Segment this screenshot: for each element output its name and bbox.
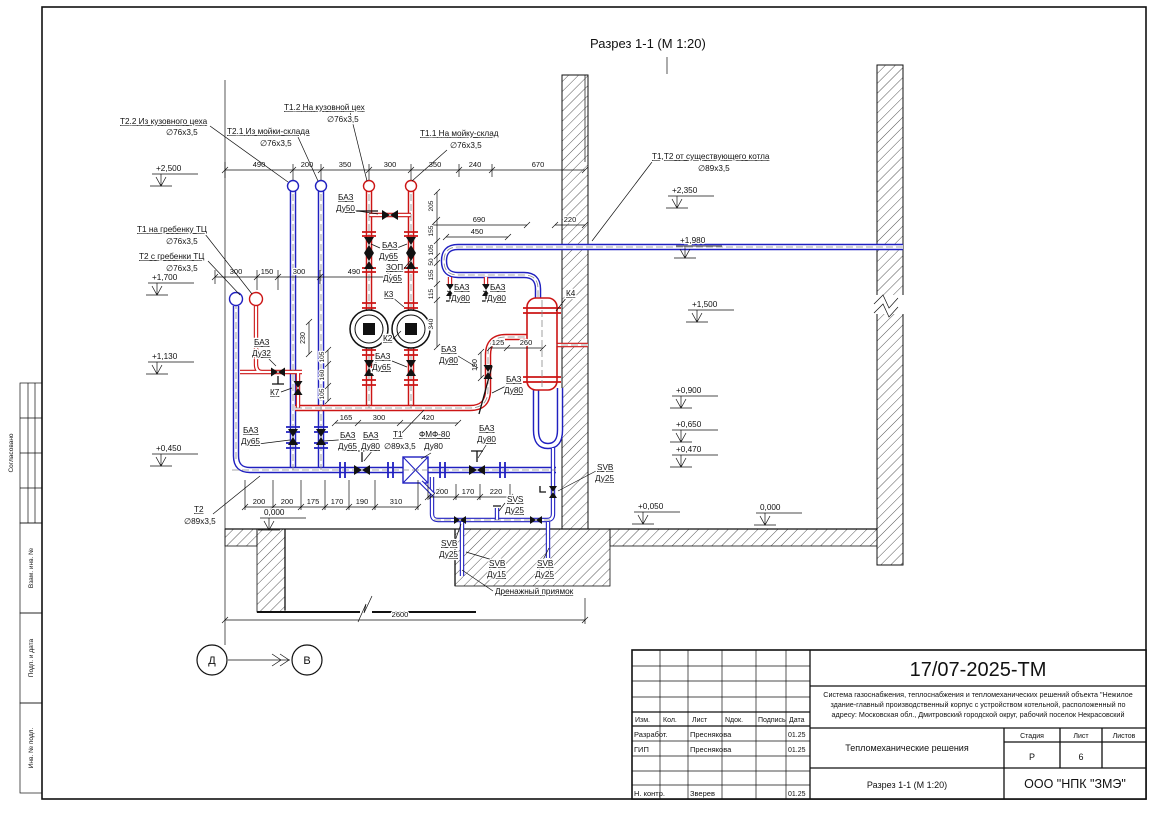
svg-text:+2,500: +2,500 — [156, 164, 182, 173]
dim-label: 205 — [428, 200, 435, 211]
dim-label: 200 — [253, 497, 266, 506]
equip-label: Ду15 — [487, 570, 506, 579]
equip-label: БАЗ — [479, 424, 495, 433]
svg-text:+2,350: +2,350 — [672, 186, 698, 195]
pipe-label: Т1.1 На мойку-склад — [420, 129, 499, 138]
equip-label: БАЗ — [243, 426, 259, 435]
stamp-vzam: Взам. инв. № — [28, 548, 35, 588]
dim-label: 690 — [473, 215, 486, 224]
dim-label: 105 — [319, 388, 326, 399]
equip-label: К4 — [566, 289, 576, 298]
dim-label: 300 — [373, 413, 386, 422]
equip-label: БАЗ — [338, 193, 354, 202]
left-stamp-strip: Согласовано Взам. инв. № Подп. и дата Ин… — [8, 383, 42, 793]
signature-role: Разработ. — [634, 730, 668, 739]
dim-label: 170 — [462, 487, 475, 496]
pipe-label: ∅76х3,5 — [166, 264, 198, 273]
equip-label: SVB — [489, 559, 506, 568]
dim-label: 670 — [532, 160, 545, 169]
svg-text:+0,650: +0,650 — [676, 420, 702, 429]
signature-date: 01.25 — [788, 732, 806, 739]
pump-k2-right — [392, 310, 430, 348]
equip-label: Ду50 — [336, 204, 355, 213]
elevation-mark: +0,470 — [670, 445, 718, 467]
equip-label: БАЗ — [340, 431, 356, 440]
dim-label: 200 — [436, 487, 449, 496]
pipe-label: ∅76х3,5 — [166, 237, 198, 246]
equip-label: Ду80 — [424, 442, 443, 451]
col-header: Кол. — [663, 717, 677, 724]
axis-label-v: В — [303, 655, 310, 667]
equip-label: Ду65 — [241, 437, 260, 446]
pipe-label: Т1 на гребенку ТЦ — [137, 225, 207, 234]
dim-label: 150 — [261, 267, 274, 276]
elevation-mark: 0,000 — [258, 508, 306, 530]
filter-fmf80 — [403, 457, 440, 499]
elevation-mark: +0,650 — [670, 420, 718, 442]
elevation-mark: 0,000 — [754, 503, 802, 525]
equip-label: Ду32 — [252, 349, 271, 358]
view-name: Разрез 1-1 (М 1:20) — [867, 780, 947, 790]
section-name: Тепломеханические решения — [845, 743, 969, 753]
elevation-mark: +0,050 — [632, 502, 680, 524]
signature-name: Преснякова — [690, 745, 732, 754]
col-header: Подпись — [758, 717, 786, 724]
elevation-mark: +0,900 — [670, 386, 718, 408]
svg-text:0,000: 0,000 — [264, 508, 285, 517]
drawing-sheet: Согласовано Взам. инв. № Подп. и дата Ин… — [0, 0, 1152, 813]
dim-label: 125 — [492, 338, 505, 347]
equip-label: Ду25 — [505, 506, 524, 515]
equip-label: Ду80 — [451, 294, 470, 303]
dim-label: 2600 — [392, 610, 409, 619]
dim-label: 160 — [319, 369, 326, 380]
equip-label: Ду25 — [439, 550, 458, 559]
equip-label: ФМФ-80 — [419, 430, 450, 439]
svg-text:+1,700: +1,700 — [152, 273, 178, 282]
pipe-label: ∅89х3,5 — [384, 442, 416, 451]
elevation-mark: +1,500 — [686, 300, 734, 322]
svg-text:+1,130: +1,130 — [152, 352, 178, 361]
dim-label: 170 — [331, 497, 344, 506]
sheets-header: Листов — [1113, 733, 1136, 740]
axis-markers: Д В — [197, 645, 322, 675]
svg-text:0,000: 0,000 — [760, 503, 781, 512]
elevation-mark: +1,130 — [146, 352, 194, 374]
svg-text:+0,470: +0,470 — [676, 445, 702, 454]
project-description: адресу: Московская обл., Дмитровский гор… — [832, 710, 1125, 719]
pipe-label: Т1,Т2 от существующего котла — [652, 152, 770, 161]
equip-label: БАЗ — [454, 283, 470, 292]
pipe-label: Т2.1 Из мойки-склада — [227, 127, 310, 136]
dim-label: 200 — [281, 497, 294, 506]
equip-label: Ду80 — [504, 386, 523, 395]
elevation-mark: +2,500 — [150, 164, 198, 186]
pipe-label: ∅89х3,5 — [184, 517, 216, 526]
dim-label: 220 — [490, 487, 503, 496]
stamp-podp: Подп. и дата — [28, 638, 35, 677]
equip-label: Ду65 — [372, 363, 391, 372]
dim-label: 310 — [390, 497, 403, 506]
pit-label: Дренажный приямок — [495, 587, 574, 596]
svg-text:+0,050: +0,050 — [638, 502, 664, 511]
pipe-label: Т1 — [393, 430, 403, 439]
equip-label: Ду25 — [535, 570, 554, 579]
dim-label: 300 — [293, 267, 306, 276]
dim-label: 115 — [428, 288, 435, 299]
col-header: Изм. — [635, 717, 650, 724]
signature-role: Н. контр. — [634, 789, 665, 798]
stage-value: Р — [1029, 752, 1035, 762]
dim-label: 420 — [422, 413, 435, 422]
pipe-label: Т2 с гребенки ТЦ — [139, 252, 204, 261]
col-header: Лист — [692, 717, 708, 724]
svg-text:+0,900: +0,900 — [676, 386, 702, 395]
axis-label-d: Д — [208, 655, 216, 667]
pipe-label: ∅76х3,5 — [260, 139, 292, 148]
equip-label: Ду65 — [338, 442, 357, 451]
equip-label: SVB — [597, 463, 614, 472]
equip-label: Ду65 — [379, 252, 398, 261]
equip-label: К3 — [384, 290, 394, 299]
wall-break-symbol — [874, 295, 906, 317]
company-name: ООО "НПК "ЗМЭ" — [1024, 777, 1126, 791]
equip-label: БАЗ — [254, 338, 270, 347]
dim-label: 175 — [307, 497, 320, 506]
pipe-label: ∅76х3,5 — [166, 128, 198, 137]
pipe-label: Т1.2 На кузовной цех — [284, 103, 365, 112]
equip-label: Ду80 — [361, 442, 380, 451]
equip-label: SVS — [507, 495, 524, 504]
dim-label: 105 — [319, 351, 326, 362]
dim-label: 450 — [471, 227, 484, 236]
doc-number: 17/07-2025-ТМ — [910, 659, 1047, 681]
dim-label: 350 — [339, 160, 352, 169]
equip-label: БАЗ — [490, 283, 506, 292]
dim-label: 230 — [300, 332, 307, 344]
dim-label: 155 — [428, 269, 435, 280]
elevation-mark: +1,700 — [146, 273, 194, 295]
section-title: Разрез 1-1 (М 1:20) — [590, 36, 706, 51]
pipe-label: ∅89х3,5 — [698, 164, 730, 173]
sheet-value: 6 — [1078, 752, 1083, 762]
dim-label: 200 — [301, 160, 314, 169]
dim-label: 260 — [520, 338, 533, 347]
equip-label: SVB — [441, 539, 458, 548]
equip-label: БАЗ — [506, 375, 522, 384]
equip-label: Ду80 — [487, 294, 506, 303]
equip-label: Ду80 — [477, 435, 496, 444]
title-block: 17/07-2025-ТМ Система газоснабжения, теп… — [632, 650, 1146, 799]
equip-label: Ду80 — [439, 356, 458, 365]
signature-role: ГИП — [634, 745, 649, 754]
equip-label: SVB — [537, 559, 554, 568]
dim-label: 155 — [428, 225, 435, 236]
dim-label: 300 — [384, 160, 397, 169]
dim-label: 240 — [469, 160, 482, 169]
signature-name: Преснякова — [690, 730, 732, 739]
pipe-label: ∅76х3,5 — [327, 115, 359, 124]
pipe-label: ∅76х3,5 — [450, 141, 482, 150]
equip-label: БАЗ — [441, 345, 457, 354]
stamp-inv: Инв. № подл. — [28, 728, 35, 769]
dim-label: 220 — [564, 215, 577, 224]
svg-text:+1,980: +1,980 — [680, 236, 706, 245]
equip-label: ЗОП — [386, 263, 403, 272]
equip-label: К2 — [383, 334, 393, 343]
elevation-mark: +0,450 — [150, 444, 198, 466]
signature-date: 01.25 — [788, 791, 806, 798]
sheet-header: Лист — [1073, 733, 1089, 740]
dim-label: 190 — [356, 497, 369, 506]
svg-text:+1,500: +1,500 — [692, 300, 718, 309]
dim-label: 105 — [428, 244, 435, 255]
dim-label: 340 — [428, 318, 435, 329]
project-description: Система газоснабжения, теплоснабжения и … — [823, 690, 1133, 699]
svg-text:+0,450: +0,450 — [156, 444, 182, 453]
equip-label: БАЗ — [363, 431, 379, 440]
stamp-soglasovano: Согласовано — [8, 433, 15, 472]
project-description: здание-главный производственный корпус с… — [830, 700, 1125, 709]
dim-label: 490 — [348, 267, 361, 276]
equip-label: БАЗ — [382, 241, 398, 250]
section-drawing: Согласовано Взам. инв. № Подп. и дата Ин… — [0, 0, 1152, 813]
elevation-mark: +2,350 — [666, 186, 714, 208]
pipe-label: Т2 — [194, 505, 204, 514]
equip-label: Ду25 — [595, 474, 614, 483]
signature-name: Зверев — [690, 789, 715, 798]
signature-date: 01.25 — [788, 747, 806, 754]
stage-header: Стадия — [1020, 733, 1044, 740]
dim-label: 165 — [340, 413, 353, 422]
col-header: Nдок. — [725, 717, 743, 724]
col-header: Дата — [789, 717, 805, 724]
equip-label: К7 — [270, 388, 280, 397]
dim-label: 50 — [428, 258, 435, 266]
equip-label: Ду65 — [383, 274, 402, 283]
equip-label: БАЗ — [375, 352, 391, 361]
pipe-label: Т2.2 Из кузовного цеха — [120, 117, 208, 126]
